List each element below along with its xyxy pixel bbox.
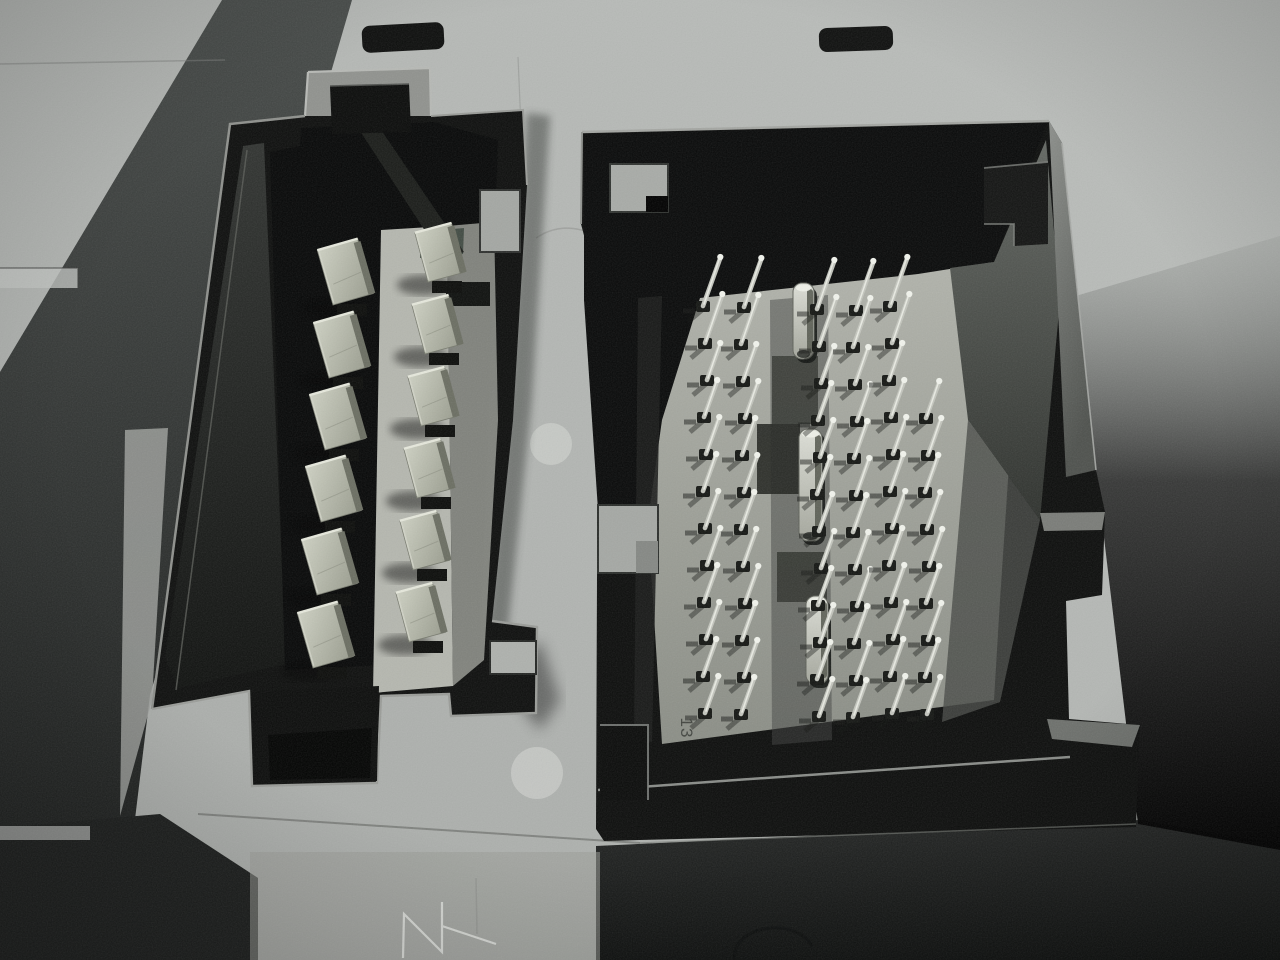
- vignette: [0, 0, 1280, 960]
- connector-photo: 13: [0, 0, 1280, 960]
- photo-stage: 13: [0, 0, 1280, 960]
